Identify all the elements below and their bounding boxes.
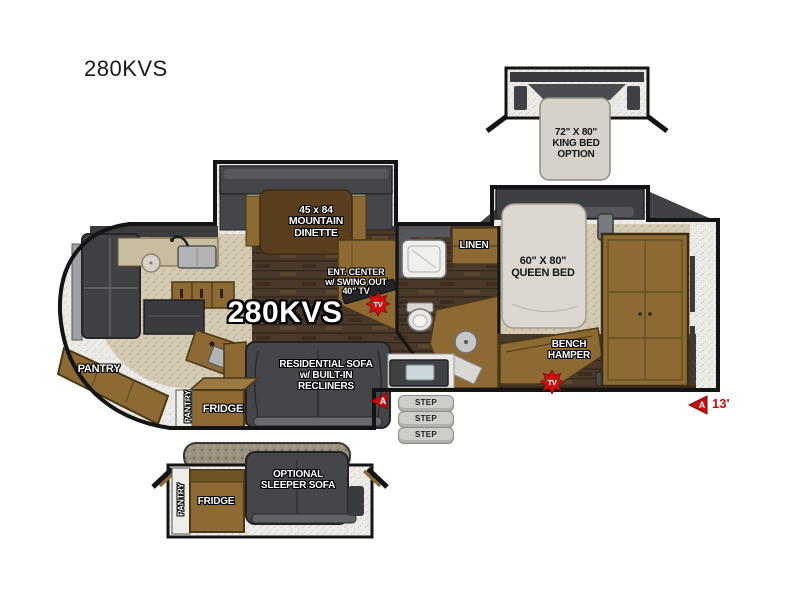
pantry-slide-label: PANTRY	[183, 389, 192, 425]
tv-marker-living: TV	[366, 292, 390, 316]
dinette-label: 45 x 84 MOUNTAIN DINETTE	[266, 205, 366, 239]
entry-door	[388, 354, 454, 388]
inset-sofa-label-line2: SLEEPER SOFA	[246, 481, 350, 492]
round-table	[142, 254, 160, 272]
awning-marker-rear: A	[688, 395, 708, 415]
tv-marker-bedroom: TV	[540, 370, 564, 394]
king-bed-option	[487, 68, 667, 180]
sofa-label-line3: RECLINERS	[268, 382, 384, 393]
tv-marker-bedroom-label: TV	[540, 370, 564, 394]
inset-fridge-label: FRIDGE	[186, 497, 246, 508]
wardrobe	[602, 234, 695, 386]
inset-pantry-label: PANTRY	[176, 478, 185, 522]
cooktop-range	[144, 300, 204, 334]
queen-bed-label-line2: QUEEN BED	[498, 268, 588, 280]
entry-step-1: STEP	[398, 395, 454, 412]
dinette-label-line3: DINETTE	[266, 228, 366, 239]
awning-length-label: 13'	[712, 396, 730, 411]
entry-step-2: STEP	[398, 411, 454, 428]
queen-bed-label: 60" X 80" QUEEN BED	[498, 256, 588, 280]
awning-marker-rear-label: A	[688, 395, 712, 415]
tv-marker-living-label: TV	[366, 292, 390, 316]
king-bed-label-line2: KING BED	[538, 139, 614, 150]
king-bed-label-line3: OPTION	[538, 150, 614, 161]
awning-marker-door-label: A	[370, 392, 392, 410]
bench-label-line2: HAMPER	[533, 351, 605, 362]
dinette-label-line2: MOUNTAIN	[266, 216, 366, 227]
floorplan-canvas: 280KVS 72" X 80" KING BED OPTION 45 x 84…	[0, 0, 800, 600]
page-title: 280KVS	[84, 57, 224, 81]
awning-marker-door: A	[370, 392, 388, 410]
inset-sofa-label: OPTIONAL SLEEPER SOFA	[246, 470, 350, 492]
bench-hamper-label: BENCH HAMPER	[533, 340, 605, 362]
entry-step-3: STEP	[398, 427, 454, 444]
sofa-label-line2: w/ BUILT-IN	[268, 371, 384, 382]
linen-label: LINEN	[448, 241, 500, 252]
model-label: 280KVS	[226, 297, 344, 329]
king-bed-label: 72" X 80" KING BED OPTION	[538, 128, 614, 160]
pantry-label: PANTRY	[72, 364, 126, 376]
sofa-label: RESIDENTIAL SOFA w/ BUILT-IN RECLINERS	[268, 360, 384, 392]
fridge-label: FRIDGE	[196, 404, 250, 416]
floorplan-graphics	[0, 0, 800, 600]
